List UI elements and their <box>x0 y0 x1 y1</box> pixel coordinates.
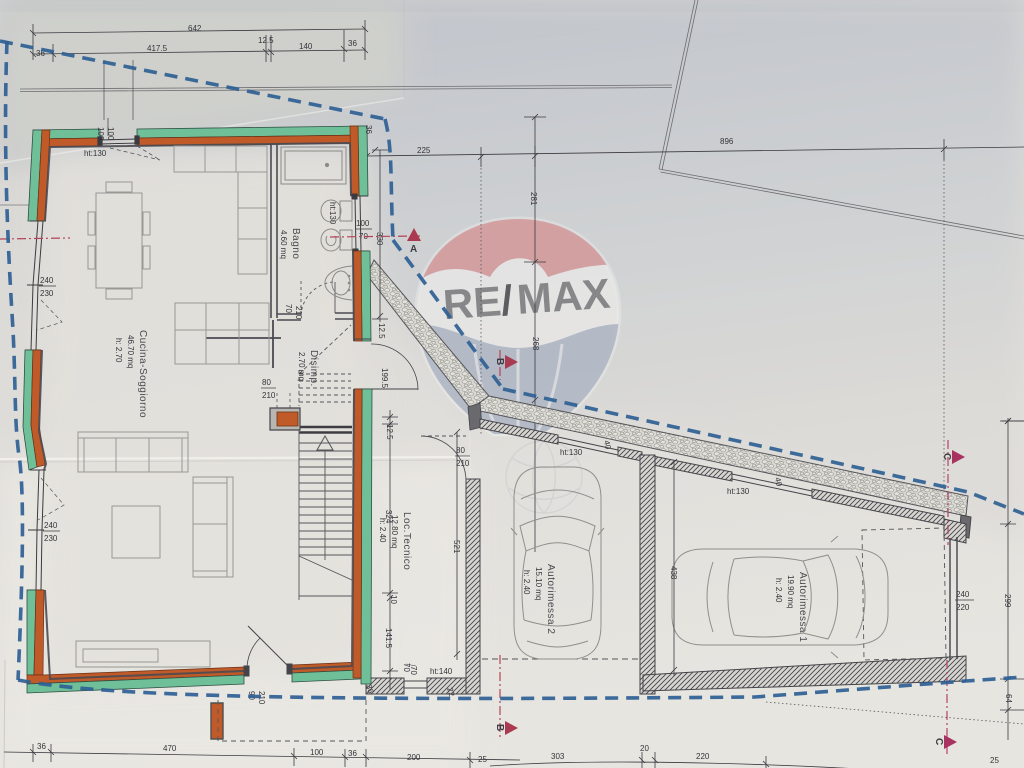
svg-text:417.5: 417.5 <box>147 44 168 53</box>
svg-text:438: 438 <box>669 566 678 580</box>
svg-text:19.90 mq: 19.90 mq <box>786 575 795 608</box>
svg-text:h: 2.40: h: 2.40 <box>774 578 783 603</box>
svg-text:4.60 mq: 4.60 mq <box>279 230 288 259</box>
svg-text:Disimp.: Disimp. <box>308 350 319 387</box>
svg-text:B: B <box>494 724 505 731</box>
svg-text:230: 230 <box>40 289 54 298</box>
svg-text:12.5: 12.5 <box>377 323 386 339</box>
svg-text:210: 210 <box>294 306 303 320</box>
svg-text:100: 100 <box>310 748 324 757</box>
svg-text:ht:130: ht:130 <box>84 149 107 158</box>
svg-text:642: 642 <box>188 24 202 33</box>
svg-text:36: 36 <box>364 125 373 134</box>
svg-text:100: 100 <box>356 219 370 228</box>
svg-text:Loc.Tecnico: Loc.Tecnico <box>401 512 412 570</box>
svg-text:521: 521 <box>452 540 461 554</box>
svg-text:281: 281 <box>529 192 538 206</box>
svg-text:220: 220 <box>956 603 970 612</box>
svg-text:C: C <box>941 453 952 460</box>
svg-text:2.70 mq: 2.70 mq <box>297 352 306 381</box>
svg-text:200: 200 <box>407 753 421 762</box>
svg-text:h: 2.70: h: 2.70 <box>114 338 123 363</box>
svg-text:210: 210 <box>262 391 276 400</box>
svg-text:ht:140: ht:140 <box>430 667 453 676</box>
svg-text:240: 240 <box>44 521 58 530</box>
svg-text:Cucina-Soggiorno: Cucina-Soggiorno <box>137 330 148 418</box>
svg-text:12.5: 12.5 <box>385 424 394 440</box>
svg-text:240: 240 <box>40 276 54 285</box>
svg-text:225: 225 <box>417 146 431 155</box>
svg-text:70: 70 <box>409 666 418 675</box>
svg-text:MAX: MAX <box>515 270 611 323</box>
svg-text:36: 36 <box>37 742 46 751</box>
svg-text:240: 240 <box>956 590 970 599</box>
svg-text:B: B <box>494 358 505 365</box>
svg-text:330: 330 <box>375 232 384 246</box>
svg-text:ht:130: ht:130 <box>727 487 750 496</box>
svg-text:199.5: 199.5 <box>380 368 389 389</box>
svg-text:36: 36 <box>348 39 357 48</box>
svg-text:RE: RE <box>442 277 503 328</box>
svg-text:C: C <box>933 738 944 745</box>
svg-text:470: 470 <box>163 744 177 753</box>
svg-text:80: 80 <box>456 446 465 455</box>
svg-text:ht:130: ht:130 <box>560 448 583 457</box>
svg-text:140: 140 <box>299 42 313 51</box>
svg-text:230: 230 <box>44 534 58 543</box>
svg-text:25: 25 <box>478 755 487 764</box>
svg-text:46.70 mq: 46.70 mq <box>126 335 135 368</box>
svg-text:220: 220 <box>696 752 710 761</box>
svg-text:36: 36 <box>348 749 357 758</box>
svg-text:324: 324 <box>384 510 393 524</box>
svg-text:210: 210 <box>456 459 470 468</box>
svg-text:100: 100 <box>106 127 115 141</box>
svg-text:64: 64 <box>1004 694 1013 703</box>
svg-text:Autorimessa 1: Autorimessa 1 <box>797 572 808 642</box>
svg-text:100: 100 <box>96 127 105 141</box>
svg-text:15.10 mq: 15.10 mq <box>534 567 543 600</box>
svg-text:h: 2.40: h: 2.40 <box>522 570 531 595</box>
svg-text:141.5: 141.5 <box>384 628 393 649</box>
svg-text:10: 10 <box>389 595 398 604</box>
svg-text:20: 20 <box>640 744 649 753</box>
svg-text:25: 25 <box>990 756 999 765</box>
svg-text:80: 80 <box>262 378 271 387</box>
svg-text:299: 299 <box>1003 594 1012 608</box>
svg-text:70: 70 <box>284 304 293 313</box>
svg-text:12.5: 12.5 <box>258 36 274 45</box>
svg-text:896: 896 <box>720 137 734 146</box>
svg-text:303: 303 <box>551 752 565 761</box>
svg-text:A: A <box>410 244 417 255</box>
svg-text:268: 268 <box>531 337 540 351</box>
svg-text:Bagno: Bagno <box>290 228 301 259</box>
svg-text:Autorimessa 2: Autorimessa 2 <box>545 564 556 634</box>
